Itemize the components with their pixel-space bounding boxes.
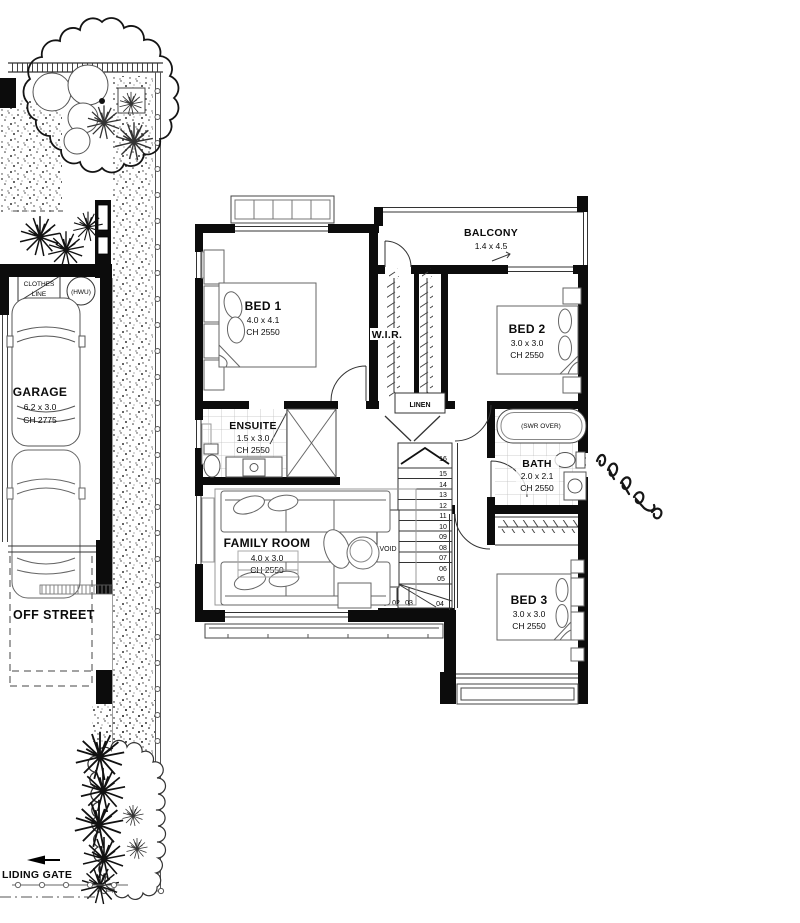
stair-number: 16 — [439, 456, 447, 463]
bed3-size: 3.0 x 3.0 — [513, 609, 546, 619]
hwu-label: (HWU) — [71, 289, 91, 296]
stair-number: 11 — [439, 513, 446, 520]
off-street-label: OFF STREET — [13, 608, 95, 622]
balcony-door-swing — [385, 241, 411, 267]
stair-number: 04 — [436, 601, 444, 608]
bed2-size: 3.0 x 3.0 — [511, 338, 544, 348]
bed3-room: BED 3 3.0 x 3.0 CH 2550 — [450, 514, 585, 661]
ensuite-size: 1.5 x 3.0 — [237, 433, 270, 443]
clothes-line-label-1: CLOTHES — [24, 281, 55, 288]
void-label: VOID — [379, 546, 396, 553]
garage-size: 6.2 x 3.0 — [24, 402, 57, 412]
linen-label: LINEN — [410, 402, 431, 409]
floor-plan-canvas: CLOTHES LINE (HWU) — [0, 0, 800, 923]
stair-number: 15 — [439, 471, 447, 478]
stair-number: 12 — [439, 503, 447, 510]
ensuite-label: ENSUITE — [229, 420, 277, 432]
shower — [287, 409, 336, 477]
paved-area-bottom — [92, 700, 155, 742]
sofa-top — [221, 491, 390, 532]
family-size: 4.0 x 3.0 — [251, 553, 284, 563]
stair-number: 05 — [437, 576, 445, 583]
wir: W.I.R. — [370, 268, 433, 407]
bath-ceiling: CH 2550 — [520, 483, 554, 493]
paver-band — [40, 585, 112, 594]
balcony-size: 1.4 x 4.5 — [475, 241, 508, 251]
bath-label: BATH — [522, 458, 552, 470]
bed1-label: BED 1 — [245, 299, 282, 313]
bed3-door-swing — [455, 514, 490, 549]
stair-number: 10 — [439, 524, 447, 531]
bed2-label: BED 2 — [509, 322, 546, 336]
ensuite-vanity — [226, 457, 282, 477]
bed2-door-swing — [455, 405, 491, 441]
bath-size: 2.0 x 2.1 — [521, 471, 554, 481]
bottom-garden — [75, 732, 166, 904]
bed1-bed — [219, 283, 316, 367]
balcony-label: BALCONY — [464, 227, 518, 239]
ensuite-ceiling: CH 2550 — [236, 445, 270, 455]
bed3-ceiling: CH 2550 — [512, 621, 546, 631]
car-2 — [7, 450, 85, 598]
ensuite: ENSUITE 1.5 x 3.0 CH 2550 — [203, 409, 336, 477]
wir-label: W.I.R. — [372, 329, 402, 341]
round-chair — [347, 537, 379, 569]
bed3-robe — [495, 517, 578, 545]
sliding-gate-label: LIDING GATE — [2, 869, 72, 881]
stair-number: 03 — [405, 600, 413, 607]
gate-arrow-icon — [27, 856, 45, 865]
garage-label: GARAGE — [13, 385, 67, 399]
bed1-room: BED 1 4.0 x 4.1 CH 2550 — [204, 250, 316, 390]
boundary-wall — [0, 78, 16, 108]
stair-number: 06 — [439, 566, 447, 573]
site-plan: CLOTHES LINE (HWU) — [0, 18, 178, 904]
bathroom: (SWR OVER) BATH 2.0 x 2.1 CH 2550 — [495, 409, 586, 505]
bed1-ceiling: CH 2550 — [246, 327, 280, 337]
ensuite-toilet — [204, 444, 220, 477]
planter-box — [118, 88, 145, 115]
side-table — [338, 583, 371, 608]
floor-plan-document: CLOTHES LINE (HWU) — [0, 0, 800, 923]
bed2-side-table — [563, 377, 581, 393]
balcony: BALCONY 1.4 x 4.5 — [383, 196, 588, 265]
stair-number: 08 — [439, 545, 447, 552]
bed1-size: 4.0 x 4.1 — [247, 315, 280, 325]
bed2-room: BED 2 3.0 x 3.0 CH 2550 — [497, 288, 581, 393]
balcony-direction-arrow-icon — [492, 252, 510, 261]
clothes-line-label-2: LINE — [32, 291, 47, 298]
family-label: FAMILY ROOM — [224, 536, 311, 550]
garage: GARAGE 6.2 x 3.0 CH 2775 — [0, 264, 112, 598]
stair-number: 07 — [439, 555, 447, 562]
stair-number: 13 — [439, 492, 447, 499]
bed2-side-table — [563, 288, 581, 304]
grass-tuft-icon — [20, 216, 60, 256]
front-planter-box — [231, 196, 334, 223]
stair-number: 02 — [392, 600, 400, 607]
bed1-door-swing — [331, 366, 366, 401]
deck-strip-family — [205, 624, 443, 638]
bed2-ceiling: CH 2550 — [510, 350, 544, 360]
upper-floor-plan: BALCONY 1.4 x 4.5 — [195, 196, 661, 704]
handwritten-initials — [597, 455, 661, 518]
stair-number: 09 — [439, 534, 447, 541]
deck-strip-bed3 — [457, 684, 578, 704]
garage-ceiling: CH 2775 — [23, 415, 57, 425]
hall-door-leaf — [385, 416, 411, 441]
bath-vanity — [564, 472, 586, 500]
bed3-label: BED 3 — [511, 593, 548, 607]
stair-number: 14 — [439, 482, 447, 489]
bath-toilet — [555, 452, 585, 468]
hall-door-leaf — [414, 416, 440, 441]
shower-over-label: (SWR OVER) — [521, 423, 561, 430]
